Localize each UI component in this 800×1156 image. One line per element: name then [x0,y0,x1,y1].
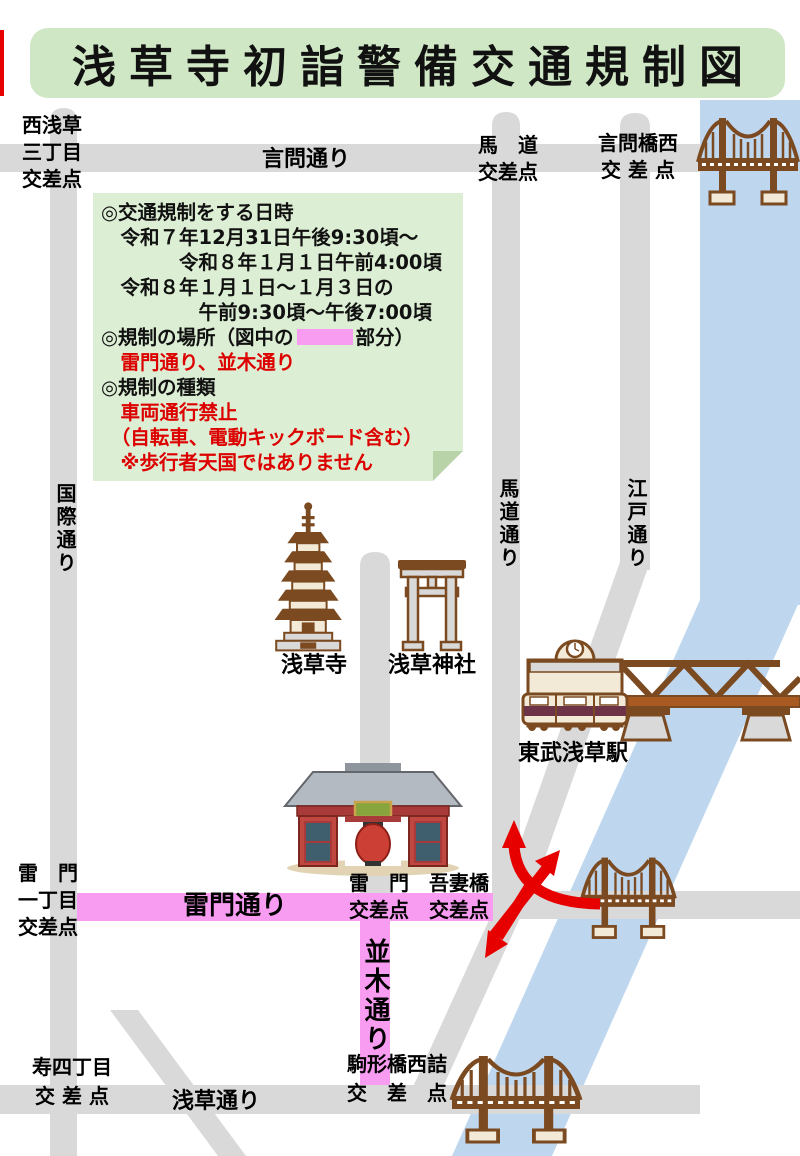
label-kaminarimon-dori: 雷門通り [183,893,287,920]
label-namiki-dori: 並木通り [361,938,388,1054]
label-umamichi-kosaten: 馬 道 交差点 [468,132,548,186]
label-azumabashi-kosaten: 吾妻橋 交差点 [426,870,492,924]
label-kaminarimon-kosaten: 雷 門 交差点 [341,870,417,924]
label-kototoibashi-nishi-kosaten: 言問橋西 交 差 点 [592,130,684,184]
label-asakusa-jinja: 浅草神社 [388,652,476,679]
label-komagatabashi-nishizume-kosaten: 駒形橋西詰 交 差 点 [316,1050,478,1108]
label-kaminarimon-itchome-kosaten: 雷 門 一丁目 交差点 [18,860,78,941]
label-kototoi-dori: 言問通り [262,146,350,173]
label-tobu-asakusa-station: 東武浅草駅 [518,740,628,767]
label-sensoji: 浅草寺 [281,652,347,679]
label-kotobuki-yonchome-kosaten: 寿四丁目 交 差 点 [22,1053,122,1111]
traffic-regulation-map-poster: 浅草寺初詣警備交通規制図 ◎交通規制をする日時 令和７年12月31日午後9:30… [0,0,800,1156]
label-umamichi-dori: 馬道通り [494,478,521,570]
label-edo-dori: 江戸通り [622,478,649,570]
label-asakusa-dori: 浅草通り [172,1088,260,1115]
map-labels-layer: 西浅草 三丁目 交差点 言問通り 馬 道 交差点 言問橋西 交 差 点 国際通り… [0,0,800,1156]
label-kokusai-dori: 国際通り [51,483,78,575]
label-nishi-asakusa-kosaten: 西浅草 三丁目 交差点 [22,112,82,193]
